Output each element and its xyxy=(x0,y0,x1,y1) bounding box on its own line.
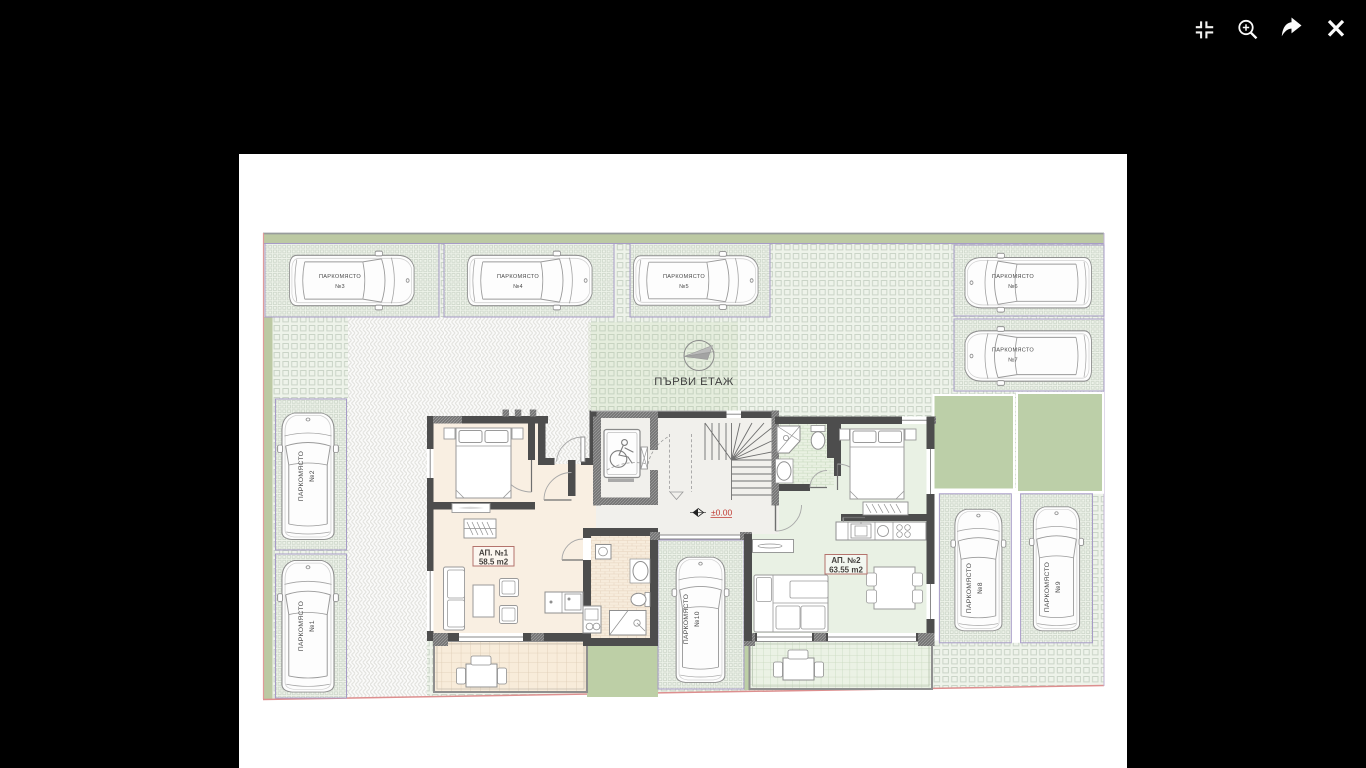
svg-text:ПАРКОМЯСТО: ПАРКОМЯСТО xyxy=(1044,562,1051,613)
svg-text:ПАРКОМЯСТО: ПАРКОМЯСТО xyxy=(298,601,305,652)
svg-text:№6: №6 xyxy=(1008,284,1018,290)
svg-text:№5: №5 xyxy=(679,284,689,290)
svg-text:63.55 m2: 63.55 m2 xyxy=(829,566,863,575)
svg-text:№10: №10 xyxy=(694,611,701,627)
svg-text:ПАРКОМЯСТО: ПАРКОМЯСТО xyxy=(298,451,305,502)
svg-text:±0.00: ±0.00 xyxy=(711,508,732,518)
svg-text:ПАРКОМЯСТО: ПАРКОМЯСТО xyxy=(497,274,539,280)
svg-text:№9: №9 xyxy=(1055,581,1062,593)
svg-text:ПАРКОМЯСТО: ПАРКОМЯСТО xyxy=(683,594,690,645)
svg-text:№1: №1 xyxy=(309,620,316,632)
svg-text:ПАРКОМЯСТО: ПАРКОМЯСТО xyxy=(319,274,361,280)
svg-text:ПАРКОМЯСТО: ПАРКОМЯСТО xyxy=(966,563,973,614)
svg-text:№3: №3 xyxy=(335,284,345,290)
svg-text:ПЪРВИ ЕТАЖ: ПЪРВИ ЕТАЖ xyxy=(654,376,734,388)
svg-text:№8: №8 xyxy=(977,582,984,594)
svg-text:№4: №4 xyxy=(513,284,523,290)
svg-text:ПАРКОМЯСТО: ПАРКОМЯСТО xyxy=(992,274,1034,280)
svg-text:АП. №2: АП. №2 xyxy=(831,556,861,565)
svg-text:№2: №2 xyxy=(309,470,316,482)
svg-text:ПАРКОМЯСТО: ПАРКОМЯСТО xyxy=(992,348,1034,354)
svg-text:58.5 m2: 58.5 m2 xyxy=(479,558,509,567)
svg-text:№7: №7 xyxy=(1008,358,1018,364)
svg-text:ПАРКОМЯСТО: ПАРКОМЯСТО xyxy=(663,274,705,280)
svg-text:АП. №1: АП. №1 xyxy=(479,549,509,558)
